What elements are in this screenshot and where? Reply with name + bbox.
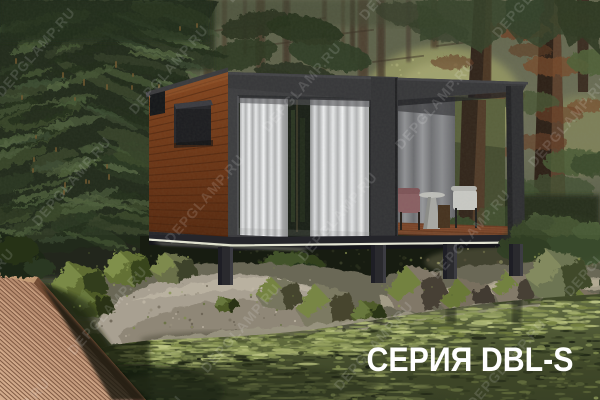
svg-text:СЕРИЯ DBL-S: СЕРИЯ DBL-S (367, 341, 574, 379)
